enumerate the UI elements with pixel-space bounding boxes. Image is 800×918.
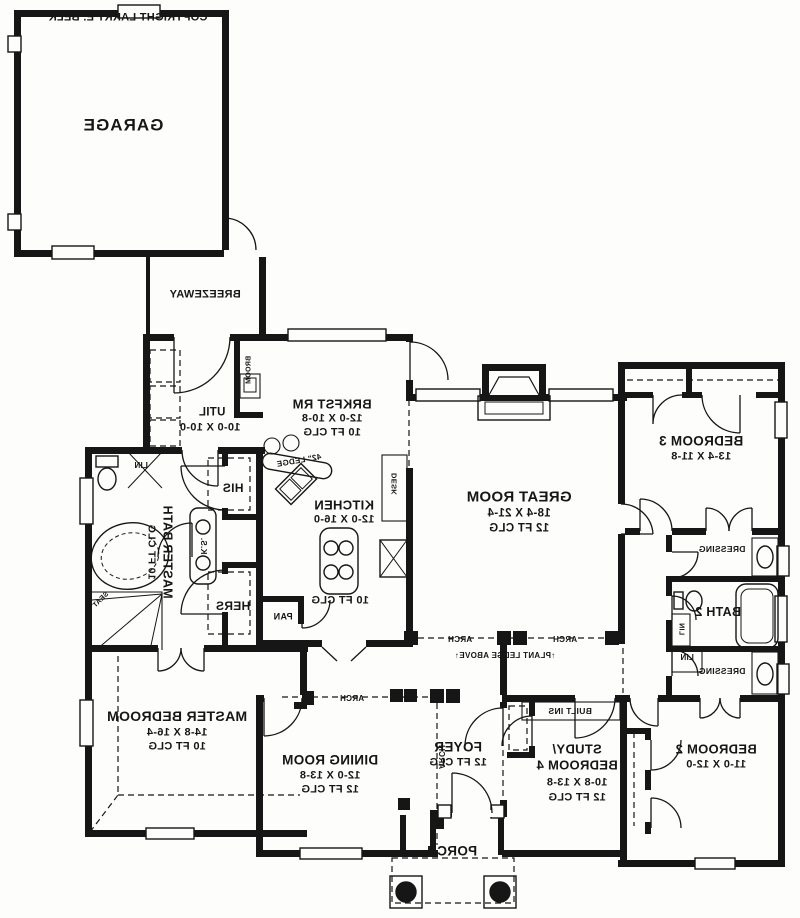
room-label-porch: PORCH [427,844,477,858]
room-label-study-2: BEDROOM 4 [536,759,617,772]
room-label-dining: DINING ROOM [282,753,378,767]
door-swings [158,218,752,828]
room-dims-brkfst: 12-0 X 10-8 [302,414,363,425]
room-label-util: UTIL [199,407,226,419]
room-label-great-room: GREAT ROOM [466,490,571,505]
room-clg-great-room: 12 FT CLG [489,523,549,535]
room-dims-master-bedroom: 14-8 X 16-4 [147,728,208,739]
linen-label-3: LIN [680,654,694,662]
pantry-label: PAN [273,613,292,622]
room-label-kitchen: KITCHEN [314,499,374,512]
room-dims-bedroom3: 13-4 X 11-8 [671,452,731,463]
room-label-brkfst: BRKFST RM [292,398,371,411]
arch-label-1: ARCH [448,636,472,644]
closet-label-his: HIS [223,482,244,494]
room-label-garage: GARAGE [83,117,164,134]
room-dims-great-room: 18-4 X 21-4 [487,508,550,520]
room-label-foyer: FOYER [434,740,482,754]
room-label-bath2: BATH 2 [695,606,741,619]
knee-space-label: K.S. [199,538,207,555]
room-label-master-bedroom: MASTER BEDROOM [107,709,247,723]
room-dims-kitchen: 12-0 X 16-0 [314,515,375,526]
room-label-master-bath: MASTER BATH [161,505,174,598]
room-dims-bedroom2: 11-0 X 12-0 [686,760,746,771]
room-clg-kitchen: 10 FT CLG [311,596,369,607]
plant-ledge-label: ↑PLANT LEDGE ABOVE↑ [455,652,556,660]
room-dims-study: 10-8 X 13-8 [547,778,608,789]
closet-label-broom: BROOM [246,356,253,384]
arch-label-3: ARCH [340,695,364,703]
desk-label: DESK [390,473,398,495]
room-clg-dining: 12 FT CLG [301,785,359,796]
linen-label-1: LIN [134,462,148,470]
linen-label-2: LIN [678,623,685,635]
arch-label-2: ARCH [553,636,577,644]
room-clg-study: 12 FT CLG [548,793,606,804]
room-label-bedroom2: BEDROOM 2 [675,743,756,756]
built-ins-label: BUILT INS [548,707,592,716]
dressing-label-1: DRESSING [699,545,746,554]
room-label-breezeway: BREEZEWAY [169,290,240,301]
room-dims-util: 10-0 X 10-0 [180,423,241,434]
room-clg-brkfst: 10 FT CLG [303,428,361,439]
room-dims-dining: 12-0 X 13-8 [300,771,361,782]
room-label-bedroom3: BEDROOM 3 [659,434,743,448]
closet-label-hers: HERS [216,600,251,612]
room-clg-foyer: 12 FT CLG [429,758,487,769]
room-clg-master-bath: 10 FT CLG [146,524,157,579]
floor-plan: COPYRIGHT LARRY E. BELK GARAGE BREEZEWAY… [0,0,800,918]
copyright-text: COPYRIGHT LARRY E. BELK [48,13,207,24]
dressing-label-2: DRESSING [699,667,746,676]
room-label-study: STUDY/ [552,743,601,756]
room-clg-master-bedroom: 10 FT CLG [148,742,206,753]
